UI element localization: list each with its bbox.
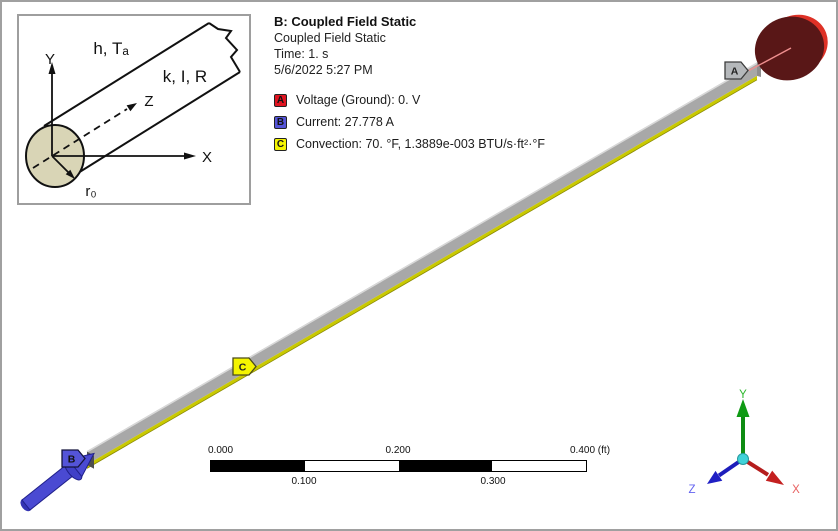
tag-c-letter: C [239, 362, 247, 374]
legend-item-convection: C Convection: 70. °F, 1.3889e-003 BTU/s·… [274, 137, 545, 151]
ruler-label-0: 0.000 [208, 445, 233, 456]
legend-item-voltage: A Voltage (Ground): 0. V [274, 93, 545, 107]
ruler-segment-2 [305, 461, 399, 471]
legend-label-convection: Convection: 70. °F, 1.3889e-003 BTU/s·ft… [296, 137, 545, 151]
ruler-segment-4 [492, 461, 586, 471]
label-axis-x: X [202, 149, 212, 166]
current-arrow-group[interactable] [18, 454, 94, 514]
ruler-label-04: 0.400 (ft) [570, 445, 610, 456]
schematic-drawing: h, Tₐ k, I, R Y Z X r₀ [19, 16, 249, 203]
analysis-title: B: Coupled Field Static [274, 13, 416, 30]
scale-ruler: 0.000 0.200 0.400 (ft) 0.100 0.300 [210, 445, 613, 491]
ansys-graphics-viewport[interactable]: B C A Y X Z [0, 0, 838, 531]
triad-x-label: X [792, 484, 800, 496]
problem-schematic-inset: h, Tₐ k, I, R Y Z X r₀ [17, 14, 251, 205]
ruler-label-02: 0.200 [385, 445, 410, 456]
orientation-triad[interactable]: Y X Z [688, 389, 800, 496]
schematic-x-arrowhead [184, 153, 196, 160]
legend-key-b: B [274, 116, 287, 129]
triad-y-arrowhead[interactable] [737, 399, 750, 417]
label-conductor-props: k, I, R [163, 67, 207, 86]
analysis-date: 5/6/2022 5:27 PM [274, 62, 416, 78]
ruler-segment-3 [399, 461, 493, 471]
analysis-time: Time: 1. s [274, 46, 416, 62]
legend-item-current: B Current: 27.778 A [274, 115, 545, 129]
cylinder-bottom-line [70, 72, 240, 178]
ruler-bar [210, 460, 587, 472]
current-arrow-shaft[interactable] [22, 465, 74, 510]
analysis-subtitle: Coupled Field Static [274, 30, 416, 46]
label-axis-y: Y [45, 51, 55, 68]
analysis-info-block: B: Coupled Field Static Coupled Field St… [274, 13, 416, 78]
ruler-segment-1 [211, 461, 305, 471]
legend-key-a: A [274, 94, 287, 107]
triad-x-arrowhead[interactable] [766, 471, 784, 485]
ruler-label-03: 0.300 [480, 476, 505, 487]
tag-a-letter: A [731, 66, 739, 78]
label-film-coefficient: h, Tₐ [93, 39, 129, 58]
tag-b-letter: B [68, 454, 76, 466]
legend-label-voltage: Voltage (Ground): 0. V [296, 93, 420, 107]
label-radius: r₀ [85, 183, 96, 200]
triad-z-label: Z [688, 484, 695, 496]
bc-legend: A Voltage (Ground): 0. V B Current: 27.7… [274, 93, 545, 159]
triad-y-label: Y [739, 389, 747, 401]
cylinder-break-line [209, 23, 240, 72]
label-axis-z: Z [144, 93, 153, 110]
legend-key-c: C [274, 138, 287, 151]
ruler-label-01: 0.100 [291, 476, 316, 487]
legend-label-current: Current: 27.778 A [296, 115, 394, 129]
triad-origin-ball[interactable] [738, 454, 749, 465]
voltage-terminal-group[interactable] [746, 6, 836, 90]
schematic-z-arrowhead [127, 103, 137, 111]
